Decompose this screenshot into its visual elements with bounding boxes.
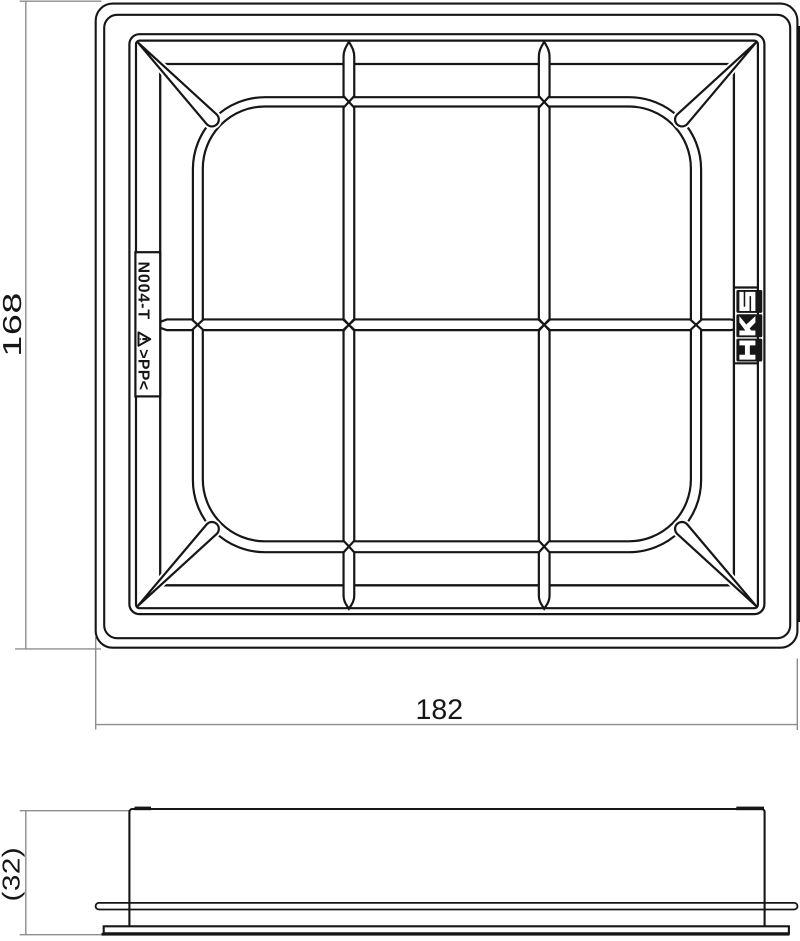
svg-text:(32): (32)	[0, 847, 25, 902]
svg-text:182: 182	[416, 694, 464, 726]
svg-text:N004-T: N004-T	[135, 262, 152, 320]
svg-text:168: 168	[0, 292, 27, 357]
svg-text:>PP<: >PP<	[135, 349, 152, 390]
